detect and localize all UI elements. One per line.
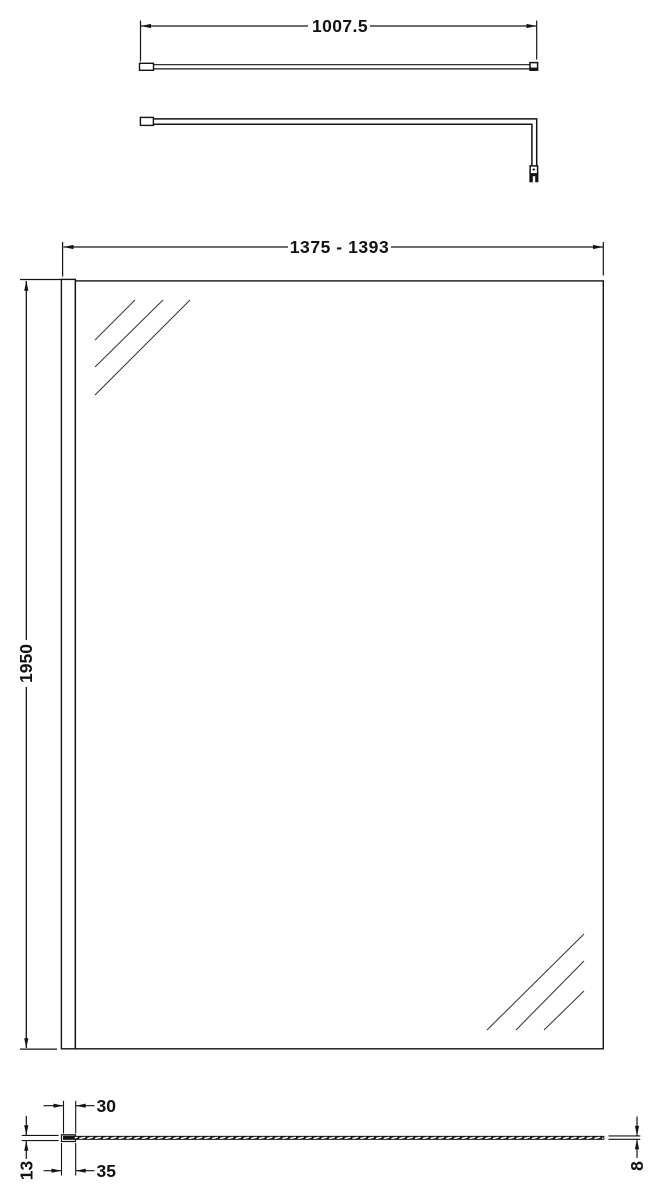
svg-text:1950: 1950 — [16, 644, 36, 683]
svg-text:30: 30 — [97, 1096, 117, 1116]
svg-text:13: 13 — [16, 1161, 36, 1181]
svg-text:1007.5: 1007.5 — [312, 16, 368, 36]
svg-text:35: 35 — [97, 1161, 117, 1181]
svg-text:8: 8 — [627, 1161, 647, 1171]
svg-text:1375 - 1393: 1375 - 1393 — [290, 237, 389, 257]
